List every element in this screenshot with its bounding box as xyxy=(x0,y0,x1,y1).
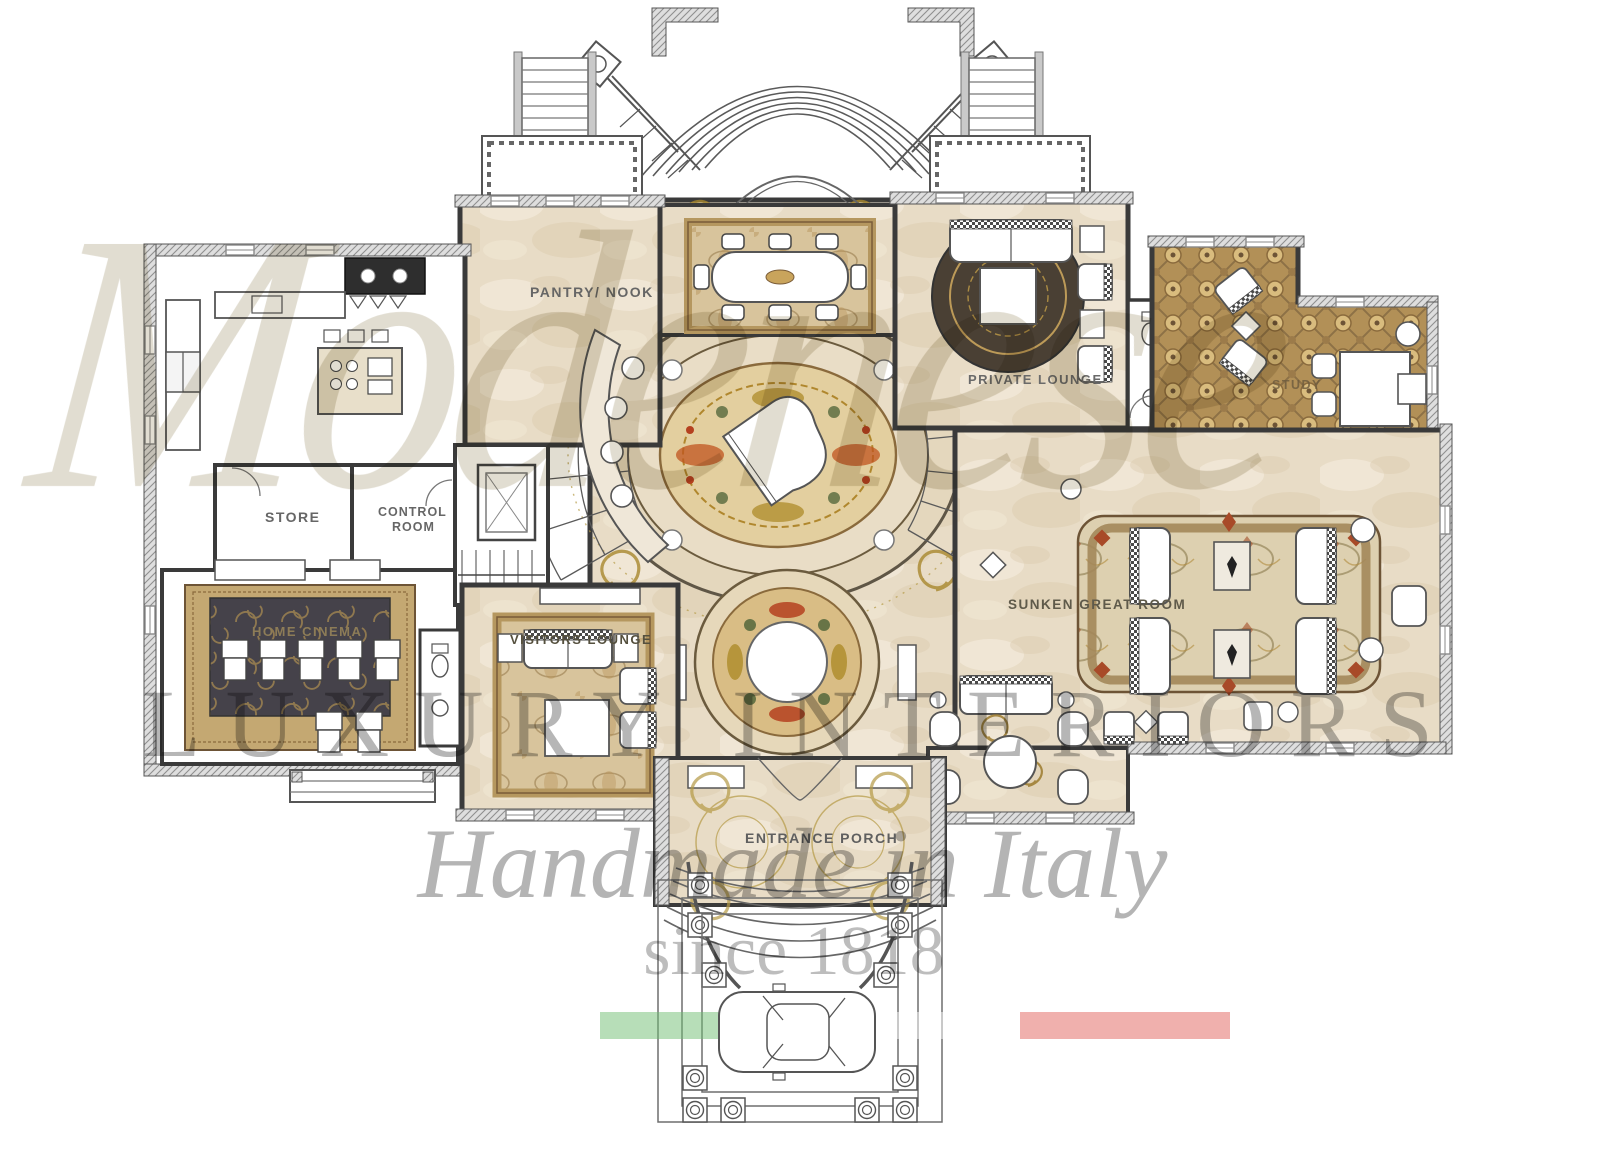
pantry-nook-label: PANTRY/ NOOK xyxy=(530,284,654,300)
store-label: STORE xyxy=(265,509,320,525)
rear-grand-staircase xyxy=(640,87,955,179)
visitors-lounge-label: VISITORS LOUNGE xyxy=(510,632,652,647)
private-lounge-room xyxy=(890,192,1133,428)
service-core xyxy=(455,445,548,605)
floor-plan-image: PANTRY/ NOOK xyxy=(0,0,1600,1169)
private-lounge-label: PRIVATE LOUNGE xyxy=(968,372,1103,387)
car xyxy=(719,984,875,1080)
cinema-bathroom xyxy=(420,630,460,746)
sunken-great-room-label: SUNKEN GREAT ROOM xyxy=(1008,597,1186,612)
italian-flag-watermark xyxy=(600,1012,1230,1039)
control-room-label-2: ROOM xyxy=(392,520,435,534)
mansion-floor-plan: PANTRY/ NOOK xyxy=(0,0,1600,1169)
kitchen-island xyxy=(318,348,402,414)
terrace-stair-top-left xyxy=(482,52,642,206)
left-terrace-steps xyxy=(290,770,435,802)
visitors-lounge-room xyxy=(456,585,684,821)
home-cinema-room xyxy=(162,560,458,764)
foyer-round-medallion xyxy=(695,570,879,754)
study-label: STUDY xyxy=(1272,378,1322,392)
entrance-porch-label: ENTRANCE PORCH xyxy=(745,830,898,846)
control-room-label-1: CONTROL xyxy=(378,505,447,519)
sunken-great-room-room xyxy=(922,424,1452,824)
entrance-porch-area xyxy=(655,758,945,988)
dining-alcove xyxy=(655,205,905,335)
rear-parapet-walls xyxy=(652,8,974,56)
terrace-stair-top-right xyxy=(930,52,1090,206)
home-cinema-label: HOME CINEMA xyxy=(252,624,362,639)
